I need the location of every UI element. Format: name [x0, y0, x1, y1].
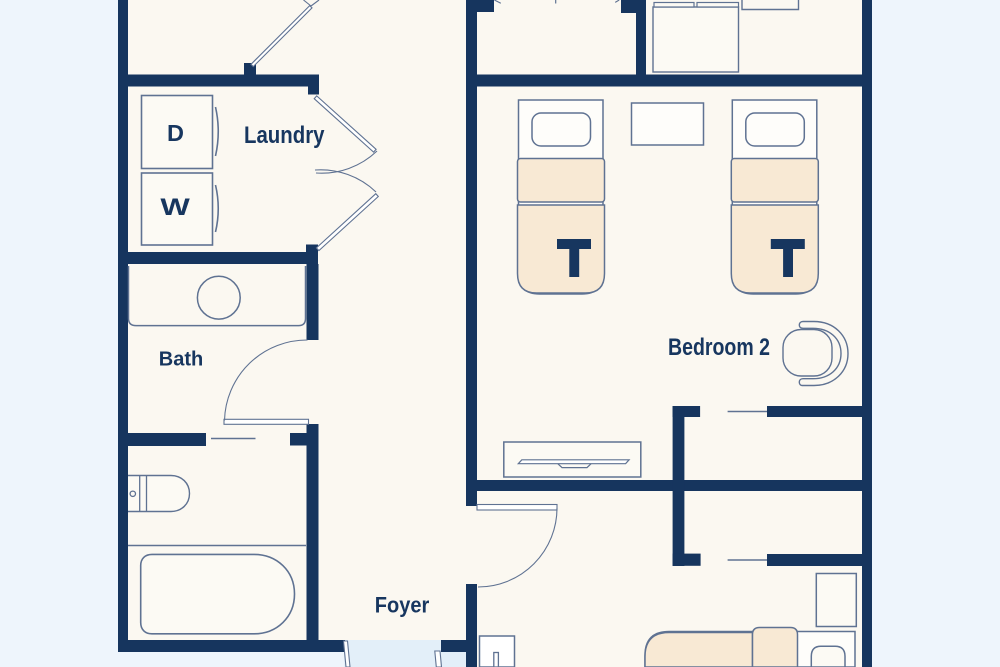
svg-text:Laundry: Laundry	[244, 122, 325, 149]
svg-text:W: W	[160, 194, 190, 221]
svg-text:Bath: Bath	[159, 349, 204, 371]
svg-text:Foyer: Foyer	[375, 593, 430, 618]
svg-text:Bedroom 2: Bedroom 2	[668, 334, 770, 361]
svg-text:D: D	[167, 120, 184, 146]
